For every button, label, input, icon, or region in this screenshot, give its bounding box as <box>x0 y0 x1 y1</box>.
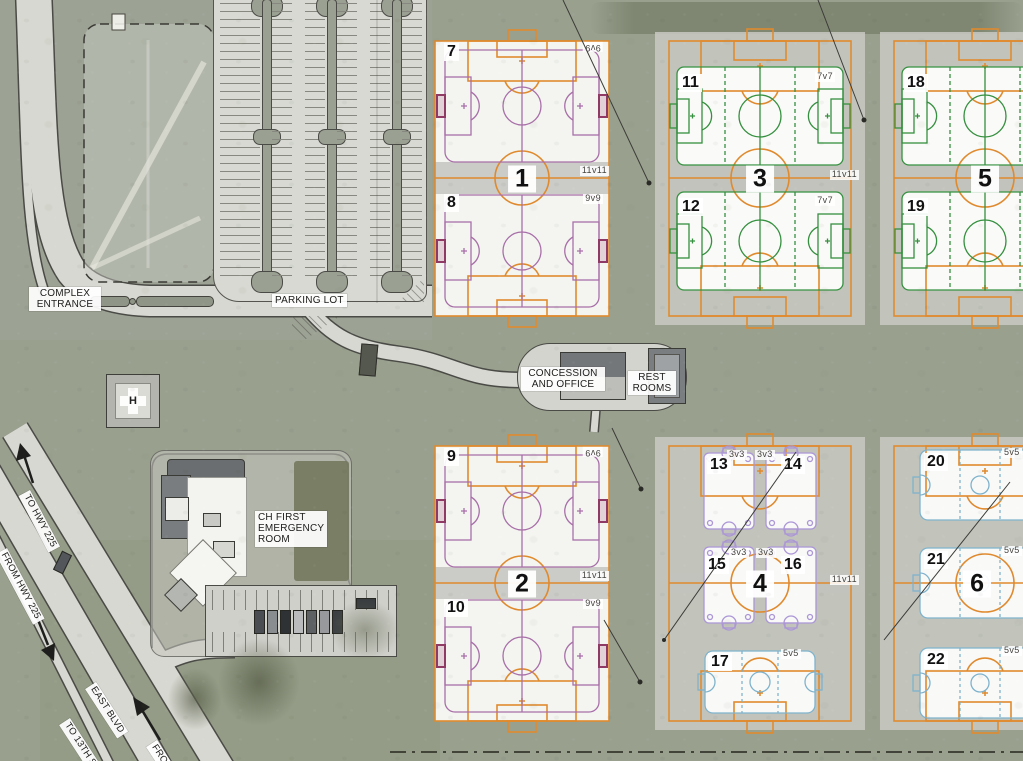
tree-cluster <box>168 668 222 730</box>
car-on-road <box>53 551 72 575</box>
overflow-area-dashed <box>84 14 214 282</box>
field-22-size: 5v5 <box>1002 646 1022 656</box>
to-hwy-225-label: TO HWY 225 <box>19 490 60 553</box>
field-complex-4: 13 3v3 3v3 14 15 3v3 3v3 16 17 5v5 4 11v… <box>661 441 859 726</box>
field-12-size: 7v7 <box>815 196 835 206</box>
er-building-annex <box>165 497 189 521</box>
field-7-size: 9v9 <box>583 42 603 52</box>
field-14-number: 14 <box>781 456 805 474</box>
field-12-number: 12 <box>679 198 703 216</box>
field-15-size: 3v3 <box>729 548 749 558</box>
emergency-room-label: CH FIRST EMERGENCY ROOM <box>255 511 327 547</box>
field-15-number: 15 <box>705 556 729 574</box>
field-2-size: 11v11 <box>580 571 609 581</box>
field-1-number: 1 <box>508 165 536 192</box>
parking-stalls <box>337 3 357 283</box>
field-9-size: 9v9 <box>583 447 603 457</box>
field-complex-3: 11 7v7 12 7v7 3 11v11 <box>661 36 859 321</box>
field-19-number: 19 <box>904 198 928 216</box>
field-10-number: 10 <box>444 599 468 617</box>
field-8-number: 8 <box>444 194 459 212</box>
parked-car <box>332 610 343 634</box>
field-11-number: 11 <box>679 74 702 92</box>
field-17-number: 17 <box>708 653 732 671</box>
tree-line-band <box>590 2 1023 34</box>
to-13th-st-label: TO 13TH ST <box>59 718 103 761</box>
rest-rooms-label: REST ROOMS <box>628 371 676 395</box>
field-complex-5: 18 19 5 <box>886 36 1023 321</box>
field-13-size: 3v3 <box>727 450 747 460</box>
parking-stalls <box>402 3 422 283</box>
field-10-size: 9v9 <box>583 599 603 609</box>
field-6-number: 6 <box>963 570 991 597</box>
field-22-number: 22 <box>924 651 948 669</box>
parking-lot <box>213 0 427 302</box>
field-18-number: 18 <box>904 74 928 92</box>
field-4-size: 11v11 <box>830 575 859 585</box>
pavement-hatch <box>292 316 340 342</box>
er-parking-stalls <box>212 632 390 652</box>
field-complex-6: 20 5v5 21 5v5 22 5v5 6 <box>886 441 1023 726</box>
field-4-number: 4 <box>746 570 774 597</box>
parking-stalls <box>220 3 240 283</box>
parked-car <box>280 610 291 634</box>
east-blvd-label: EAST BLVD <box>85 682 128 739</box>
parking-lot-label: PARKING LOT <box>272 294 347 307</box>
soccer-complex-site-plan: H <box>0 0 1023 761</box>
field-5-number: 5 <box>971 165 999 192</box>
field-8-size: 9v9 <box>583 194 603 204</box>
field-3-size: 11v11 <box>830 170 859 180</box>
field-complex-2: 9 9v9 10 9v9 2 11v11 <box>431 441 613 726</box>
helipad-h-mark: H <box>107 375 159 427</box>
helipad: H <box>106 374 160 428</box>
er-rooftop-unit <box>203 513 221 527</box>
field-1-size: 11v11 <box>580 166 609 176</box>
road-arrows <box>16 443 160 740</box>
field-20-number: 20 <box>924 453 948 471</box>
entrance-median <box>136 296 214 307</box>
field-14-size: 3v3 <box>755 450 775 460</box>
from-hwy-225-label: FROM HWY 225 <box>0 548 44 624</box>
field-6-art <box>886 441 1023 726</box>
field-3-number: 3 <box>746 165 774 192</box>
parked-car <box>319 610 330 634</box>
concession-office-label: CONCESSION AND OFFICE <box>521 367 605 391</box>
field-20-size: 5v5 <box>1002 448 1022 458</box>
field-complex-1: 7 9v9 8 9v9 1 11v11 <box>431 36 613 321</box>
field-2-number: 2 <box>508 570 536 597</box>
dumpster <box>359 343 379 376</box>
field-11-size: 7v7 <box>815 72 835 82</box>
field-16-number: 16 <box>781 556 805 574</box>
parked-car <box>267 610 278 634</box>
field-17-size: 5v5 <box>781 649 801 659</box>
parking-stalls <box>272 3 292 283</box>
field-7-number: 7 <box>444 43 459 61</box>
parked-car <box>306 610 317 634</box>
er-parking-lot <box>205 585 397 657</box>
parked-car <box>293 610 304 634</box>
from-13th-st-label: FROM <box>146 740 176 761</box>
complex-entrance-label: COMPLEX ENTRANCE <box>29 287 101 311</box>
field-9-number: 9 <box>444 448 459 466</box>
field-21-number: 21 <box>924 551 948 569</box>
parked-car <box>254 610 265 634</box>
entrance-median-dot <box>129 298 136 305</box>
parked-truck <box>356 598 376 609</box>
field-16-size: 3v3 <box>756 548 776 558</box>
field-21-size: 5v5 <box>1002 546 1022 556</box>
